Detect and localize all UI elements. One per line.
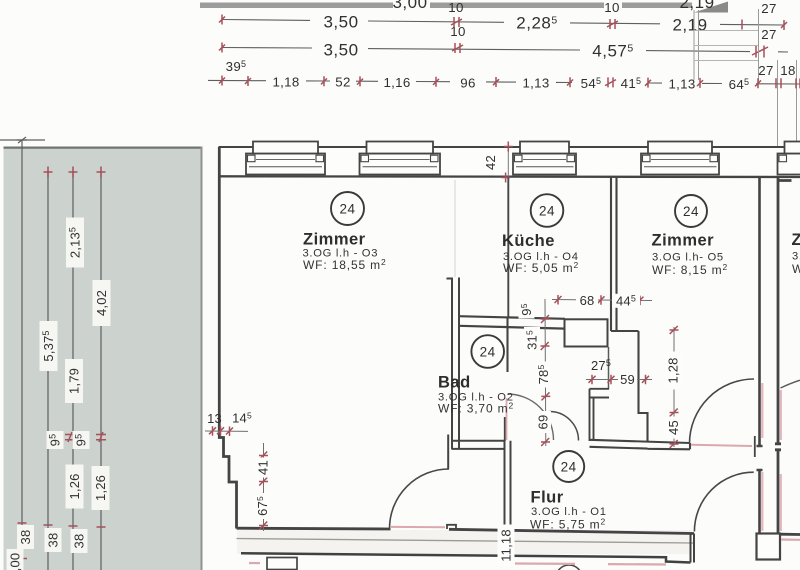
- svg-text:38: 38: [72, 534, 87, 549]
- svg-text:1,13: 1,13: [668, 77, 695, 92]
- svg-text:24: 24: [339, 202, 355, 217]
- svg-text:13: 13: [207, 411, 222, 426]
- svg-text:68: 68: [580, 293, 595, 308]
- svg-text:2,19: 2,19: [672, 16, 707, 35]
- svg-text:38: 38: [46, 533, 61, 548]
- svg-text:WF: 18,55 m2: WF: 18,55 m2: [303, 257, 387, 272]
- svg-text:11,18: 11,18: [499, 529, 514, 562]
- svg-text:3.O: 3.O: [792, 251, 800, 263]
- svg-text:24: 24: [561, 460, 577, 475]
- svg-text:96: 96: [460, 75, 475, 90]
- svg-text:2,19: 2,19: [679, 0, 714, 12]
- svg-text:10: 10: [448, 0, 463, 15]
- svg-text:Zim: Zim: [792, 231, 800, 249]
- svg-text:1,28: 1,28: [666, 357, 681, 383]
- svg-text:27: 27: [761, 1, 776, 16]
- svg-text:WF: 5,05 m2: WF: 5,05 m2: [503, 260, 579, 275]
- svg-text:27: 27: [758, 63, 773, 78]
- svg-text:1,26: 1,26: [67, 473, 82, 499]
- svg-text:3.OG l.h - O1: 3.OG l.h - O1: [531, 506, 607, 518]
- svg-text:Zimmer: Zimmer: [303, 231, 366, 249]
- svg-text:WF: 3,70 m2: WF: 3,70 m2: [438, 401, 514, 416]
- svg-text:3,50: 3,50: [323, 41, 358, 60]
- svg-text:24: 24: [480, 345, 496, 360]
- svg-text:,00: ,00: [8, 553, 23, 570]
- svg-text:52: 52: [335, 75, 350, 90]
- svg-text:Bad: Bad: [438, 374, 471, 392]
- svg-text:1,18: 1,18: [272, 75, 299, 90]
- svg-text:18: 18: [780, 63, 795, 78]
- svg-text:3,00: 3,00: [392, 0, 427, 12]
- svg-text:45: 45: [666, 420, 681, 435]
- svg-text:41: 41: [256, 460, 271, 475]
- svg-text:WF: WF: [792, 262, 800, 276]
- svg-text:10: 10: [450, 24, 465, 39]
- svg-text:38: 38: [18, 530, 33, 545]
- svg-text:Küche: Küche: [502, 232, 555, 250]
- svg-text:4,02: 4,02: [94, 290, 109, 316]
- svg-text:WF: 5,75 m2: WF: 5,75 m2: [530, 517, 606, 532]
- svg-text:1,26: 1,26: [93, 475, 108, 501]
- svg-text:59: 59: [620, 372, 635, 387]
- svg-text:24: 24: [683, 204, 699, 219]
- svg-text:10: 10: [604, 0, 619, 15]
- svg-text:3.OG l.h- O5: 3.OG l.h- O5: [652, 252, 724, 264]
- svg-text:Zimmer: Zimmer: [652, 232, 715, 250]
- svg-text:69: 69: [536, 415, 551, 430]
- svg-text:WF: 8,15 m2: WF: 8,15 m2: [652, 262, 728, 277]
- svg-text:Flur: Flur: [531, 489, 564, 507]
- svg-text:3,50: 3,50: [323, 13, 358, 32]
- svg-text:42: 42: [483, 155, 498, 170]
- svg-text:1,16: 1,16: [383, 75, 410, 90]
- svg-text:27: 27: [761, 27, 776, 42]
- svg-text:24: 24: [539, 204, 555, 219]
- svg-text:1,13: 1,13: [522, 76, 549, 91]
- svg-text:1,79: 1,79: [67, 368, 82, 394]
